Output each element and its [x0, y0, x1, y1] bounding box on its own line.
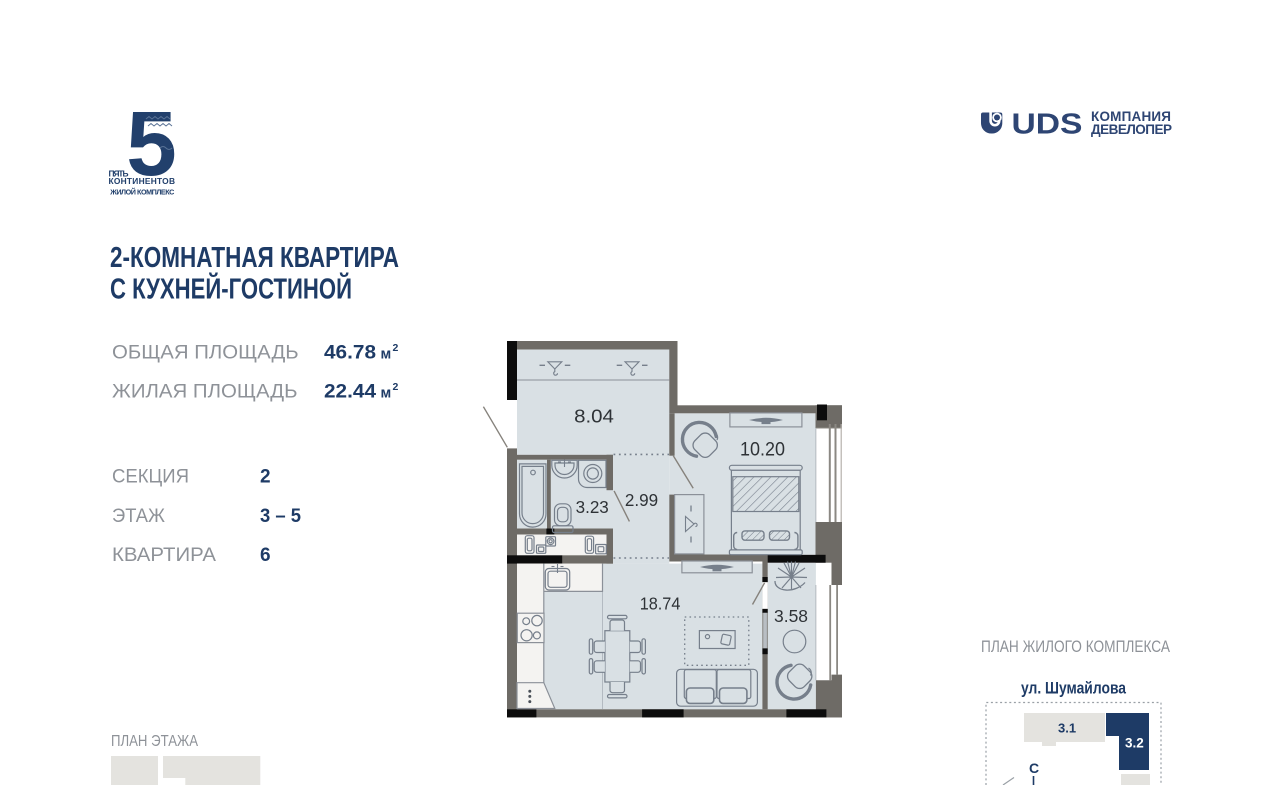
- svg-text:2: 2: [260, 467, 271, 488]
- svg-text:3.1: 3.1: [1058, 721, 1076, 736]
- svg-text:6: 6: [260, 545, 271, 566]
- svg-text:2-КОМНАТНАЯ КВАРТИРА: 2-КОМНАТНАЯ КВАРТИРА: [110, 242, 399, 274]
- svg-text:м: м: [381, 347, 392, 363]
- svg-text:КВАРТИРА: КВАРТИРА: [112, 545, 216, 566]
- svg-text:ДЕВЕЛОПЕР: ДЕВЕЛОПЕР: [1091, 122, 1172, 137]
- svg-text:ПЛАН ЖИЛОГО КОМПЛЕКСА: ПЛАН ЖИЛОГО КОМПЛЕКСА: [981, 638, 1170, 656]
- svg-text:UDS: UDS: [1012, 109, 1083, 141]
- svg-text:3 – 5: 3 – 5: [260, 506, 301, 527]
- svg-text:3.58: 3.58: [774, 606, 808, 626]
- svg-text:ЭТАЖ: ЭТАЖ: [112, 506, 165, 527]
- svg-text:3.23: 3.23: [576, 497, 609, 517]
- svg-text:46.78: 46.78: [324, 343, 376, 364]
- svg-text:8.04: 8.04: [574, 407, 614, 427]
- svg-text:22.44: 22.44: [324, 381, 376, 402]
- svg-text:ОБЩАЯ ПЛОЩАДЬ: ОБЩАЯ ПЛОЩАДЬ: [112, 343, 299, 364]
- svg-text:С КУХНЕЙ-ГОСТИНОЙ: С КУХНЕЙ-ГОСТИНОЙ: [110, 273, 352, 306]
- svg-text:18.74: 18.74: [640, 594, 681, 614]
- svg-text:2.99: 2.99: [625, 490, 658, 510]
- svg-text:ЖИЛАЯ ПЛОЩАДЬ: ЖИЛАЯ ПЛОЩАДЬ: [112, 381, 298, 402]
- svg-text:ул. Шумайлова: ул. Шумайлова: [1021, 679, 1127, 697]
- svg-text:КОНТИНЕНТОВ: КОНТИНЕНТОВ: [109, 176, 176, 186]
- svg-text:СЕКЦИЯ: СЕКЦИЯ: [112, 467, 189, 488]
- svg-text:3.2: 3.2: [1125, 736, 1144, 751]
- svg-text:2: 2: [393, 381, 399, 393]
- svg-text:м: м: [381, 385, 392, 401]
- svg-text:С: С: [1029, 760, 1039, 776]
- svg-text:2: 2: [393, 342, 399, 354]
- svg-text:ПЛАН ЭТАЖА: ПЛАН ЭТАЖА: [111, 733, 198, 750]
- svg-text:ЖИЛОЙ КОМПЛЕКС: ЖИЛОЙ КОМПЛЕКС: [109, 187, 174, 196]
- svg-text:10.20: 10.20: [740, 439, 785, 461]
